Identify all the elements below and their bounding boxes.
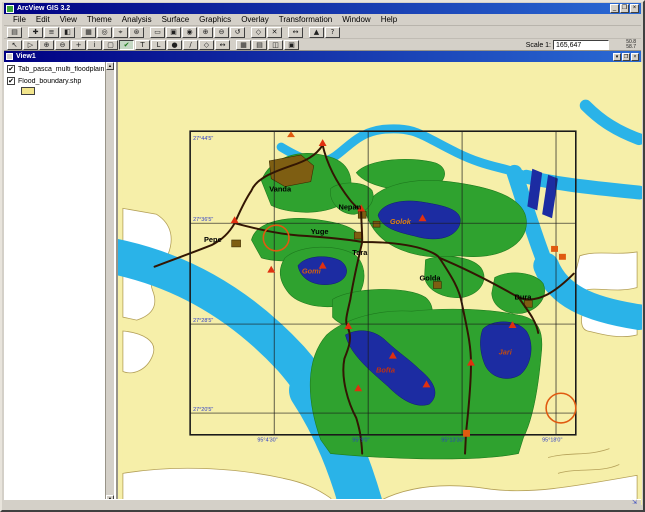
legend-theme[interactable]: ✔ Tab_pasca_multi_floodplain.tif <box>4 62 106 74</box>
lat-label-3: 27°28'5" <box>193 318 213 324</box>
lon-label-3: 95°13'30" <box>441 438 464 444</box>
find-button[interactable]: ◎ <box>97 27 112 38</box>
menu-item[interactable]: Graphics <box>194 15 236 24</box>
legend-scrollbar[interactable]: ▲ ▼ <box>105 62 114 503</box>
theme-label: Flood_boundary.shp <box>18 78 81 85</box>
scale-label: Scale 1: <box>526 42 551 49</box>
chart-view-button[interactable]: ◫ <box>268 40 283 50</box>
label-jari: Jari <box>499 348 513 357</box>
zoom-selected-button[interactable]: ◉ <box>182 27 197 38</box>
menu-item[interactable]: Edit <box>31 15 55 24</box>
clear-selection-button[interactable]: ✕ <box>267 27 282 38</box>
theme-label: Tab_pasca_multi_floodplain.tif <box>18 66 104 73</box>
coordinate-readout: 50.8 58.7 <box>612 40 636 50</box>
status-bar: ⇲ <box>4 499 641 508</box>
lat-label-2: 27°36'5" <box>193 217 213 223</box>
maximize-button[interactable]: ❐ <box>620 4 629 13</box>
menu-bar: FileEditViewThemeAnalysisSurfaceGraphics… <box>4 14 641 26</box>
lat-label-4: 27°20'5" <box>193 407 213 413</box>
village-golda <box>433 282 441 289</box>
zoom-active-theme-button[interactable]: ▣ <box>166 27 181 38</box>
save-project-button[interactable]: ▤ <box>7 27 22 38</box>
app-title: ArcView GIS 3.2 <box>17 5 609 12</box>
label-tara: Tara <box>352 248 368 257</box>
menu-item[interactable]: File <box>8 15 31 24</box>
lon-label-2: 95°9'0" <box>352 438 369 444</box>
attribute-table-button[interactable]: ▤ <box>252 40 267 50</box>
zoom-out-button[interactable]: ⊖ <box>214 27 229 38</box>
theme-checkbox[interactable]: ✔ <box>7 65 15 73</box>
identify-tool-button[interactable]: i <box>87 40 102 50</box>
select-box-tool-button[interactable]: ▢ <box>103 40 118 50</box>
label-tool-button[interactable]: L <box>151 40 166 50</box>
menu-item[interactable]: Transformation <box>274 15 338 24</box>
lon-label-4: 95°18'0" <box>542 438 562 444</box>
label-vanda: Vanda <box>269 185 292 194</box>
map-view[interactable]: Vanda Nepan Pepe Yuge Tara Golda Dura Go… <box>118 62 642 505</box>
edit-legend-button[interactable]: ◧ <box>60 27 75 38</box>
application-window: ArcView GIS 3.2 _ ❐ × FileEditViewThemeA… <box>0 0 645 512</box>
resize-grip-icon[interactable]: ⇲ <box>632 500 639 507</box>
theme-swatch <box>21 87 35 95</box>
area-of-interest-button[interactable]: ▦ <box>236 40 251 50</box>
map-canvas: Vanda Nepan Pepe Yuge Tara Golda Dura Go… <box>118 62 642 505</box>
hot-link-button[interactable]: ↔ <box>288 27 303 38</box>
vertex-edit-tool-button[interactable]: ▷ <box>23 40 38 50</box>
text-tool-button[interactable]: T <box>135 40 150 50</box>
label-dura: Dura <box>514 292 532 301</box>
open-table-button[interactable]: ▦ <box>81 27 96 38</box>
view-minimize-button[interactable]: ▾ <box>613 53 621 61</box>
coordinate-y: 58.7 <box>612 45 636 50</box>
select-features-button[interactable]: ◇ <box>251 27 266 38</box>
village-tara <box>354 232 362 239</box>
view-maximize-button[interactable]: ❐ <box>622 53 630 61</box>
scale-box: Scale 1: 50.8 58.7 <box>526 39 639 51</box>
scale-input[interactable] <box>553 40 609 50</box>
label-golda: Golda <box>420 274 442 283</box>
zoom-out-tool-button[interactable]: ⊖ <box>55 40 70 50</box>
label-nepan: Nepan <box>338 202 361 211</box>
label-yuge: Yuge <box>311 227 329 236</box>
draw-tool-button[interactable]: ✔ <box>119 40 134 50</box>
button-bar: ▤✚≡◧▦◎⌖⊛▭▣◉⊕⊖↺◇✕↔▲? <box>4 26 641 39</box>
label-bofta: Bofta <box>376 365 395 374</box>
add-theme-button[interactable]: ✚ <box>28 27 43 38</box>
legend-theme[interactable]: ✔ Flood_boundary.shp <box>4 74 106 96</box>
label-golok: Golok <box>390 217 412 226</box>
app-icon <box>6 5 14 13</box>
legend-panel: ✔ Tab_pasca_multi_floodplain.tif ✔ Flood… <box>4 62 118 505</box>
menu-item[interactable]: Analysis <box>117 15 157 24</box>
view-window-icon <box>6 53 13 60</box>
pan-tool-button[interactable]: + <box>71 40 86 50</box>
label-gomi: Gomi <box>302 267 322 276</box>
locate-button[interactable]: ⌖ <box>113 27 128 38</box>
view-window-titlebar[interactable]: View1 ▾ ❐ × <box>4 51 641 62</box>
menu-item[interactable]: Help <box>376 15 402 24</box>
menu-item[interactable]: Overlay <box>236 15 274 24</box>
line-tool-button[interactable]: ∕ <box>183 40 198 50</box>
theme-properties-button[interactable]: ≡ <box>44 27 59 38</box>
menu-item[interactable]: Window <box>337 15 375 24</box>
title-bar: ArcView GIS 3.2 _ ❐ × <box>4 3 641 14</box>
help-button[interactable]: ? <box>325 27 340 38</box>
zoom-in-tool-button[interactable]: ⊕ <box>39 40 54 50</box>
point-tool-button[interactable]: ● <box>167 40 182 50</box>
measure-tool-button[interactable]: ↔ <box>215 40 230 50</box>
zoom-previous-button[interactable]: ↺ <box>230 27 245 38</box>
menu-item[interactable]: Theme <box>82 15 117 24</box>
zoom-full-extent-button[interactable]: ▭ <box>150 27 165 38</box>
scroll-up-icon[interactable]: ▲ <box>106 62 114 70</box>
lon-label-1: 95°4'30" <box>257 438 277 444</box>
lat-label-1: 27°44'5" <box>193 136 213 142</box>
create-chart-button[interactable]: ▲ <box>309 27 324 38</box>
view-close-button[interactable]: × <box>631 53 639 61</box>
pointer-tool-button[interactable]: ↖ <box>7 40 22 50</box>
label-pepe: Pepe <box>204 235 222 244</box>
menu-item[interactable]: Surface <box>157 15 195 24</box>
layout-view-button[interactable]: ▣ <box>284 40 299 50</box>
query-builder-button[interactable]: ⊛ <box>129 27 144 38</box>
minimize-button[interactable]: _ <box>610 4 619 13</box>
theme-checkbox[interactable]: ✔ <box>7 77 15 85</box>
village-nepan-2 <box>373 221 380 227</box>
polygon-tool-button[interactable]: ◇ <box>199 40 214 50</box>
village-pepe <box>232 240 241 247</box>
menu-item[interactable]: View <box>55 15 82 24</box>
view-window-title: View1 <box>16 53 612 60</box>
close-button[interactable]: × <box>630 4 639 13</box>
legend-theme-list: ✔ Tab_pasca_multi_floodplain.tif ✔ Flood… <box>4 62 106 96</box>
zoom-in-button[interactable]: ⊕ <box>198 27 213 38</box>
